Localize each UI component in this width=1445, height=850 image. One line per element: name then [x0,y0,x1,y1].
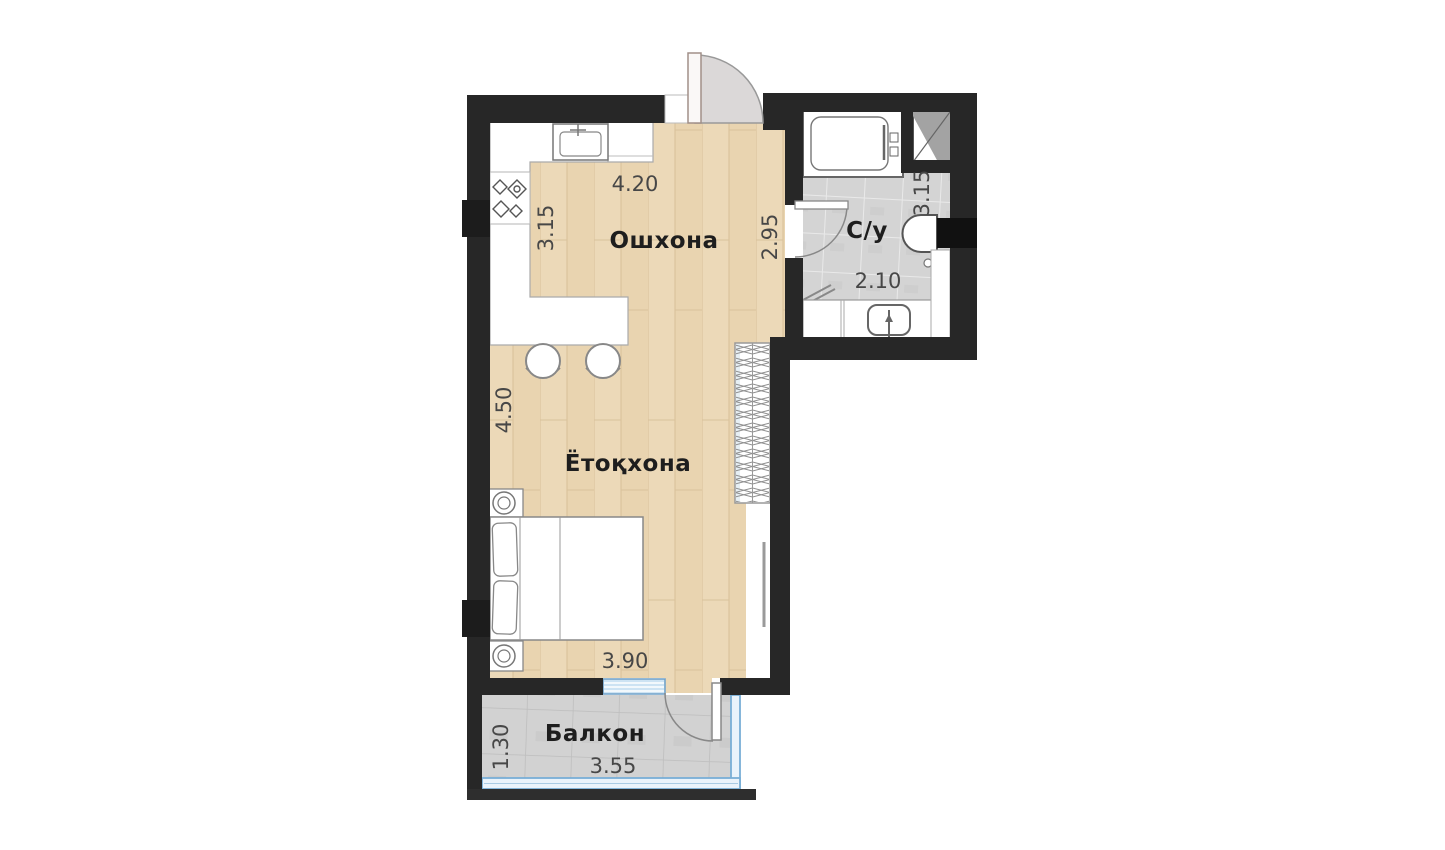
washbasin [868,305,910,341]
dim-kitchen-left: 3.15 [534,205,558,252]
wall-top-kitchen [467,95,665,123]
stove-burners [490,172,530,224]
balcony-window [603,679,665,694]
entrance-door-leaf [688,53,701,123]
wall-bedroom-right [770,337,790,695]
room-label-balcony: Балкон [545,721,645,747]
wall-toilet-pier [937,218,977,248]
dim-balcony-bottom: 3.55 [590,754,637,778]
room-label-kitchen: Ошхона [609,228,718,254]
dim-kitchen-top: 4.20 [612,172,659,196]
wall-left-balcony [467,678,482,800]
entrance-jamb [665,95,689,123]
nightstand-top [487,489,523,517]
wall-shaft-left [901,110,913,162]
wall-ledge [746,503,770,678]
wall-top-bathroom [763,93,977,112]
wall-bathroom-left-lower [785,258,803,337]
bathroom-door-opening [785,205,803,258]
bathtub [803,110,903,177]
wall-bedroom-bottom-left [467,678,603,695]
wall-bedroom-bottom-right [720,678,790,695]
balcony-glazing-right [731,695,740,789]
wall-pier-left-b [462,600,490,637]
nightstand-bottom [487,641,523,671]
wall-bathroom-bottom [770,337,977,360]
kitchen-sink [553,124,608,160]
room-label-bedroom: Ётоқхона [565,449,692,477]
floor-plan: Ошхона Ётоқхона С/у Балкон 4.20 3.15 2.9… [0,0,1445,850]
dim-bathroom-bottom: 2.10 [855,269,902,293]
dim-bedroom-bottom: 3.90 [602,649,649,673]
floor-plan-canvas: Ошхона Ётоқхона С/у Балкон 4.20 3.15 2.9… [0,0,1445,850]
dim-bedroom-left: 4.50 [492,387,516,434]
wall-balcony-bottom [467,789,756,800]
room-label-bathroom: С/у [846,218,888,244]
bed [490,517,643,640]
dim-kitchen-right: 2.95 [758,214,782,261]
vent-shaft [913,110,950,162]
wall-left [467,95,490,678]
bathroom-door-leaf [795,201,848,209]
wall-bathroom-left-upper [785,112,803,205]
dim-bathroom-right: 3.15 [910,170,934,217]
dim-balcony-left: 1.30 [489,724,513,771]
balcony-door-leaf [712,683,721,740]
wall-pier-left-a [462,200,490,237]
wardrobe [735,343,770,503]
